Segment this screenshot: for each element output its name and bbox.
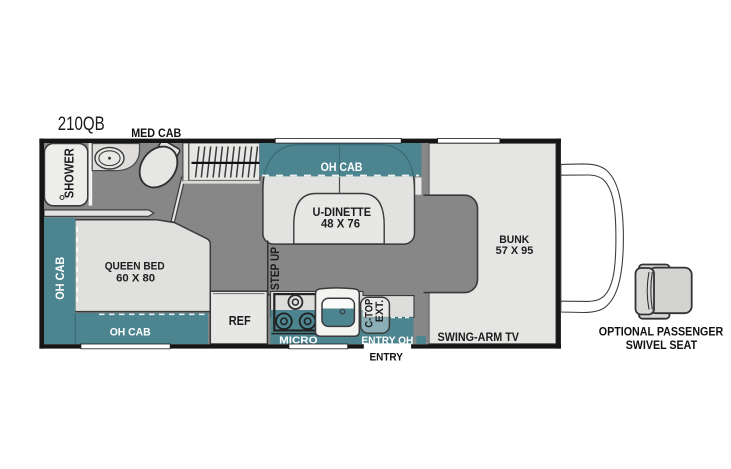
svg-text:210QB: 210QB bbox=[58, 113, 105, 135]
svg-text:MED CAB: MED CAB bbox=[131, 128, 181, 140]
svg-text:OPTIONAL PASSENGER: OPTIONAL PASSENGER bbox=[599, 325, 724, 339]
svg-text:SWING-ARM TV: SWING-ARM TV bbox=[438, 330, 520, 344]
svg-text:REF: REF bbox=[229, 313, 251, 328]
svg-text:STEP UP: STEP UP bbox=[268, 247, 282, 290]
svg-text:OH CAB: OH CAB bbox=[321, 160, 363, 174]
svg-text:ENTRY: ENTRY bbox=[369, 352, 403, 364]
svg-text:57 X 95: 57 X 95 bbox=[496, 245, 534, 257]
svg-text:EXT.: EXT. bbox=[374, 300, 386, 322]
svg-text:60 X 80: 60 X 80 bbox=[116, 272, 155, 284]
svg-text:SHOWER: SHOWER bbox=[61, 148, 76, 199]
svg-text:48 X 76: 48 X 76 bbox=[321, 219, 360, 231]
svg-text:SWIVEL SEAT: SWIVEL SEAT bbox=[626, 338, 698, 352]
svg-text:OH CAB: OH CAB bbox=[55, 257, 67, 300]
svg-text:OH CAB: OH CAB bbox=[110, 327, 151, 339]
svg-text:U-DINETTE: U-DINETTE bbox=[313, 207, 372, 219]
svg-text:QUEEN BED: QUEEN BED bbox=[105, 260, 165, 272]
